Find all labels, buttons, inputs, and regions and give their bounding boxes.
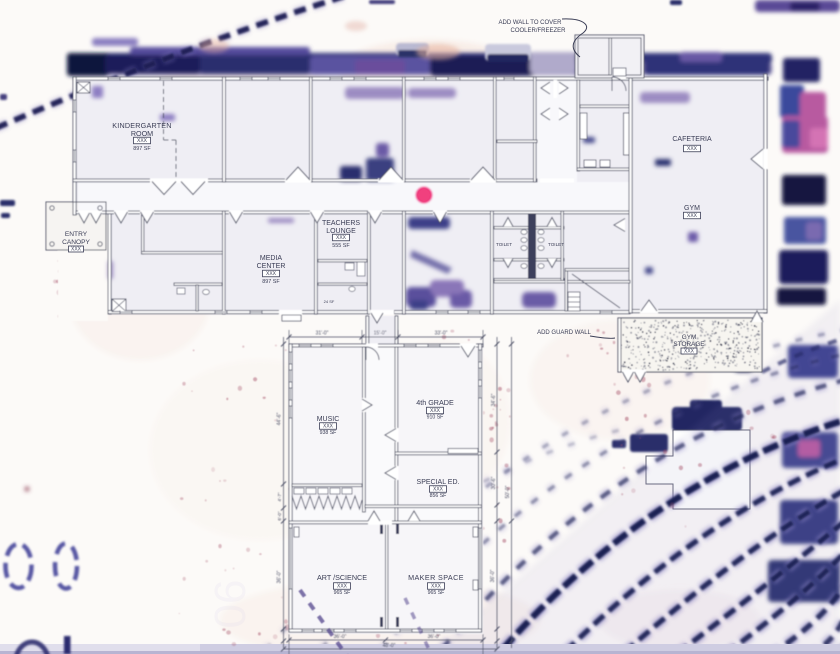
svg-text:06: 06 [206, 580, 255, 629]
svg-text:XXX: XXX [337, 584, 348, 590]
svg-text:965 SF: 965 SF [334, 590, 351, 596]
svg-text:965 SF: 965 SF [428, 590, 445, 596]
svg-text:SPECIAL ED.: SPECIAL ED. [417, 479, 460, 486]
svg-text:TOILET: TOILET [548, 242, 564, 247]
svg-text:44'-6": 44'-6" [277, 412, 283, 425]
svg-text:36'-0": 36'-0" [334, 634, 347, 640]
svg-text:XXX: XXX [431, 584, 442, 590]
svg-text:CAFETERIA: CAFETERIA [672, 136, 712, 143]
svg-text:36'-0": 36'-0" [428, 634, 441, 640]
svg-text:897 SF: 897 SF [262, 279, 280, 285]
svg-text:TOILET: TOILET [496, 242, 512, 247]
svg-text:30'-6": 30'-6" [491, 476, 497, 489]
svg-text:ENTRY: ENTRY [65, 231, 88, 238]
svg-text:CENTER: CENTER [257, 263, 286, 270]
svg-text:36'-0": 36'-0" [277, 570, 283, 583]
svg-text:GYM: GYM [684, 205, 700, 212]
svg-text:XXX: XXX [71, 246, 82, 252]
svg-text:34'-6": 34'-6" [491, 393, 497, 406]
svg-text:XXX: XXX [266, 271, 277, 277]
svg-text:36'-0": 36'-0" [490, 569, 496, 582]
svg-text:MUSIC: MUSIC [317, 416, 340, 423]
svg-text:856 SF: 856 SF [430, 493, 447, 499]
svg-text:910 SF: 910 SF [427, 415, 444, 421]
svg-text:4th GRADE: 4th GRADE [416, 398, 454, 407]
svg-text:938 SF: 938 SF [320, 430, 337, 436]
svg-text:15'-0": 15'-0" [374, 331, 387, 337]
svg-text:XXX: XXX [687, 146, 698, 152]
svg-text:48'-0": 48'-0" [383, 643, 396, 649]
svg-text:6'-0": 6'-0" [277, 511, 282, 521]
svg-text:MAKER SPACE: MAKER SPACE [408, 573, 464, 582]
svg-text:897 SF: 897 SF [133, 146, 151, 152]
svg-text:GYM: GYM [682, 334, 697, 341]
svg-text:ROOM: ROOM [131, 129, 153, 138]
svg-text:XXX: XXX [684, 348, 695, 354]
svg-text:XXX: XXX [323, 424, 334, 430]
svg-text:33'-0": 33'-0" [435, 331, 448, 337]
svg-text:XXX: XXX [336, 235, 347, 241]
svg-text:XXX: XXX [433, 487, 444, 493]
svg-text:COOLER/FREEZER: COOLER/FREEZER [510, 28, 566, 34]
svg-text:XXX: XXX [430, 408, 441, 414]
svg-text:ART /SCIENCE: ART /SCIENCE [317, 573, 367, 582]
svg-text:TEACHERS: TEACHERS [322, 220, 360, 227]
svg-text:STORAGE: STORAGE [673, 341, 704, 348]
svg-text:ADD GUARD WALL: ADD GUARD WALL [537, 330, 591, 336]
svg-text:31'-0": 31'-0" [316, 331, 329, 337]
svg-text:4'-7": 4'-7" [277, 492, 282, 502]
svg-text:XXX: XXX [137, 138, 148, 144]
svg-text:ADD WALL TO COVER: ADD WALL TO COVER [498, 20, 562, 26]
svg-text:XXX: XXX [687, 213, 698, 219]
svg-text:CANOPY: CANOPY [62, 239, 90, 246]
svg-text:MEDIA: MEDIA [260, 255, 283, 262]
svg-text:50'-0": 50'-0" [505, 485, 511, 498]
svg-text:24 SF: 24 SF [324, 299, 335, 304]
svg-text:555 SF: 555 SF [332, 243, 350, 249]
